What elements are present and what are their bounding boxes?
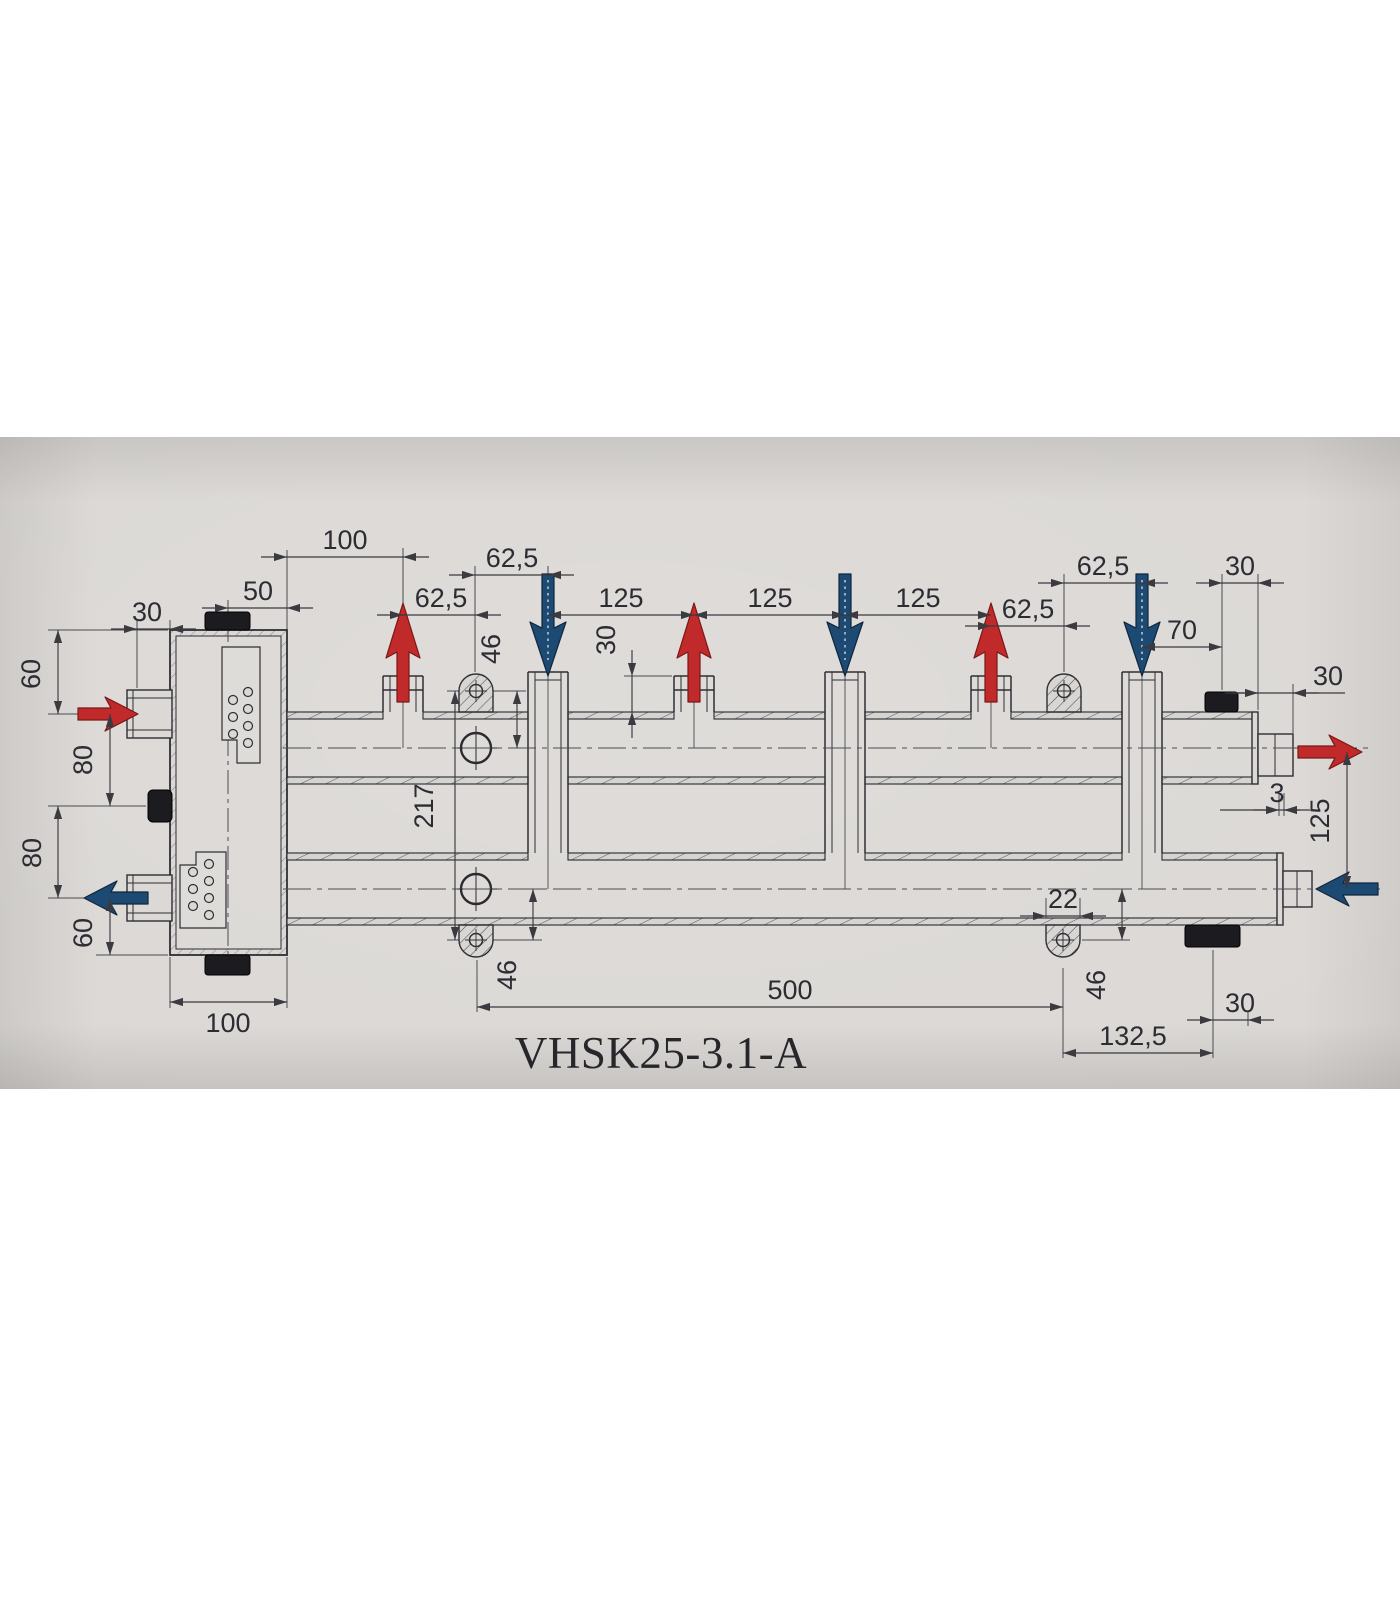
dim-label-left-80-top: 80 xyxy=(68,745,98,775)
dim-label-left-60-bottom: 60 xyxy=(68,918,98,948)
dim-label-top-30: 30 xyxy=(1225,551,1255,581)
upper-pipe-outlet-nipple xyxy=(1258,734,1293,776)
dim-label-top-62-1: 62,5 xyxy=(486,543,539,573)
dim-label-right-125: 125 xyxy=(1305,798,1335,843)
dim-label-top-125-3: 125 xyxy=(895,583,940,613)
dim-label-top-100: 100 xyxy=(322,525,367,555)
dim-label-132-5: 132,5 xyxy=(1099,1021,1167,1051)
dim-label-left-80-bottom: 80 xyxy=(17,838,47,868)
dim-label-block-100: 100 xyxy=(205,1008,250,1038)
dim-label-top-62-4: 62,5 xyxy=(1077,551,1130,581)
lower-pipe-plug xyxy=(1185,925,1240,947)
dim-label-top-125-2: 125 xyxy=(747,583,792,613)
dim-label-top-62-3: 62,5 xyxy=(1002,594,1055,624)
drawing-title: VHSK25-3.1-A xyxy=(515,1028,807,1078)
upper-pipe-plug xyxy=(1205,692,1238,712)
technical-drawing-canvas: 100 62,5 62,5 125 125 125 62,5 62,5 30 7… xyxy=(0,0,1400,1600)
paper-background xyxy=(0,437,1400,1089)
dim-label-top-62-2: 62,5 xyxy=(415,583,468,613)
dim-label-top-125-1: 125 xyxy=(598,583,643,613)
dim-label-46-bottom-left: 46 xyxy=(492,960,522,990)
dim-label-left-50: 50 xyxy=(243,576,273,606)
dim-label-right-30: 30 xyxy=(1313,661,1343,691)
dim-label-500: 500 xyxy=(767,975,812,1005)
dim-label-bottom-30: 30 xyxy=(1225,988,1255,1018)
dim-label-left-30: 30 xyxy=(132,597,162,627)
block-side-plug xyxy=(148,790,172,822)
dim-label-46-bottom-right: 46 xyxy=(1081,970,1111,1000)
dim-label-left-60-top: 60 xyxy=(16,659,46,689)
dim-label-top-70: 70 xyxy=(1167,615,1197,645)
dim-label-30-stub: 30 xyxy=(591,625,621,655)
dim-label-46-top: 46 xyxy=(476,634,506,664)
dim-label-217: 217 xyxy=(409,783,439,828)
dim-label-right-3: 3 xyxy=(1269,778,1284,808)
dim-label-22: 22 xyxy=(1048,884,1078,914)
block-top-plug xyxy=(205,612,250,630)
block-bottom-plug xyxy=(205,955,250,975)
screenshot-root: 100 62,5 62,5 125 125 125 62,5 62,5 30 7… xyxy=(0,0,1400,1600)
